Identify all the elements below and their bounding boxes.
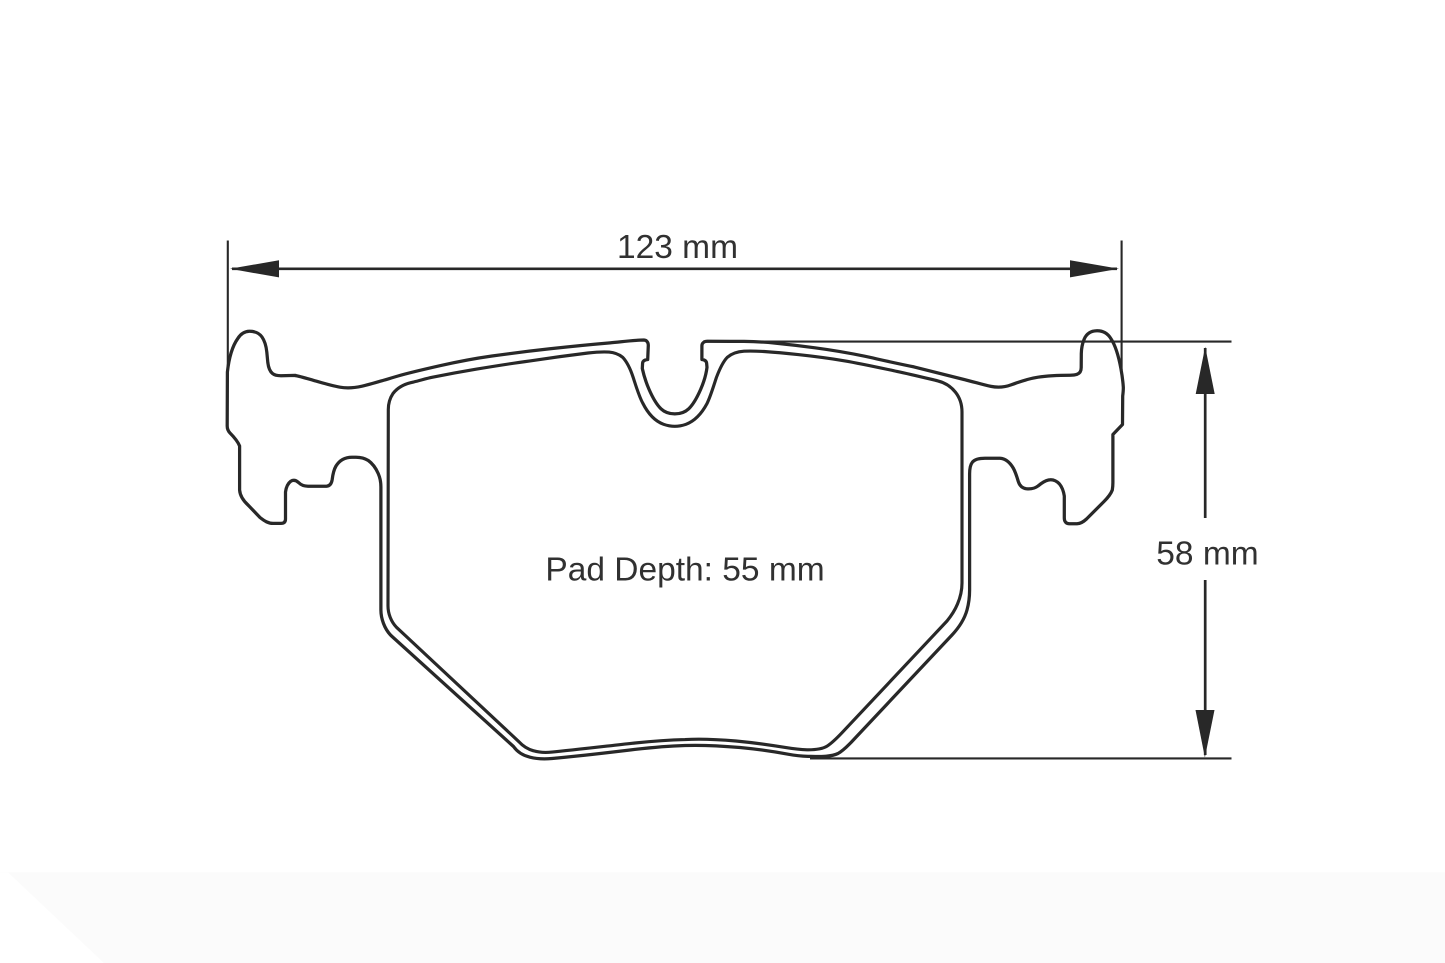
svg-text:123 mm: 123 mm [617, 229, 738, 266]
svg-text:Pad Depth: 55 mm: Pad Depth: 55 mm [545, 552, 824, 589]
svg-text:58 mm: 58 mm [1156, 536, 1258, 573]
